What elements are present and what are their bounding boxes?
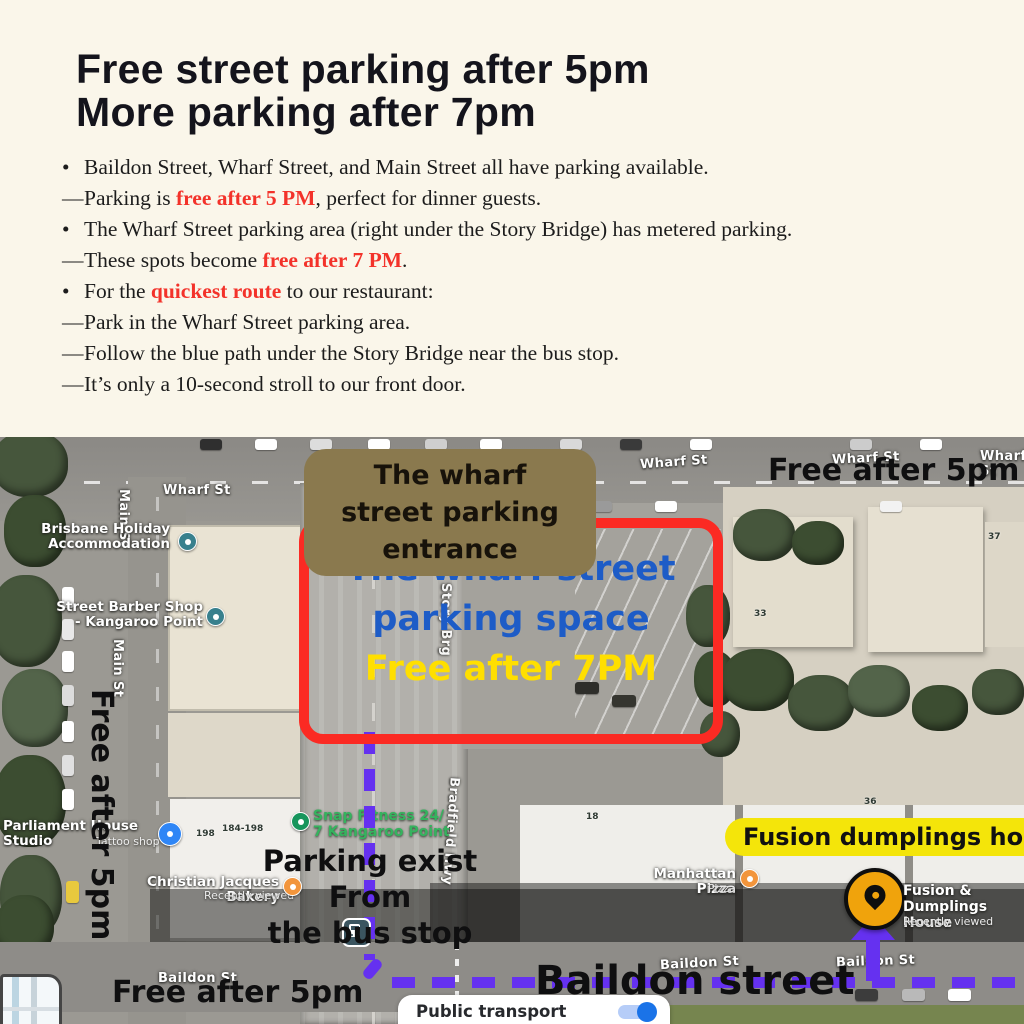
parking-exit-line-1: Parking exist From [220, 843, 520, 915]
car [620, 439, 642, 450]
car [850, 439, 872, 450]
bullet-marker: — [62, 245, 84, 276]
tree [2, 669, 68, 747]
bullet-marker: — [62, 338, 84, 369]
highlighted-text: free after 5 PM [176, 186, 315, 210]
annotation-free-after-5pm-left: Free after 5pm [84, 689, 119, 940]
fusion-badge: Fusion dumplings house [725, 818, 1024, 856]
bullet-marker: — [62, 307, 84, 338]
instruction-text: These spots become [84, 248, 263, 272]
instruction-line: —Parking is free after 5 PM, perfect for… [62, 183, 997, 214]
title-line-2: More parking after 7pm [76, 91, 650, 134]
gym-pin[interactable] [291, 812, 310, 831]
instruction-line: —Follow the blue path under the Story Br… [62, 338, 997, 369]
restaurant-marker[interactable] [844, 868, 906, 930]
bullet-marker: — [62, 183, 84, 214]
building-number: 198 [196, 829, 215, 839]
poi-fusion-sub: Recently viewed [903, 915, 993, 928]
title-line-1: Free street parking after 5pm [76, 48, 650, 91]
instruction-text: Follow the blue path under the Story Bri… [84, 341, 619, 365]
poi-manhattan-sub: Pizza [708, 882, 736, 895]
instruction-text: Baildon Street, Wharf Street, and Main S… [84, 155, 709, 179]
satellite-map[interactable]: Wharf St Wharf St Wharf St Wharf St Main… [0, 437, 1024, 1024]
car [855, 989, 878, 1001]
toggle-knob [637, 1002, 657, 1022]
instruction-text: It’s only a 10-second stroll to our fron… [84, 372, 466, 396]
building-number: 33 [754, 609, 767, 619]
tree [972, 669, 1024, 715]
public-transport-label: Public transport [416, 1002, 566, 1021]
instruction-text: Parking is [84, 186, 176, 210]
car [655, 501, 677, 512]
instruction-text: , perfect for dinner guests. [315, 186, 541, 210]
poi-snap-fitness: Snap Fitness 24/ 7 Kangaroo Point [313, 808, 450, 840]
instruction-text: . [402, 248, 407, 272]
minimap-inset[interactable] [0, 974, 62, 1024]
entrance-badge: The wharf street parking entrance [304, 449, 596, 576]
public-transport-toggle[interactable] [618, 1005, 654, 1019]
instruction-text: to our restaurant: [281, 279, 433, 303]
tree [0, 575, 62, 667]
parking-instructions-list: •Baildon Street, Wharf Street, and Main … [62, 152, 997, 400]
tree [0, 437, 68, 497]
poi-street-barber: Street Barber Shop - Kangaroo Point [55, 600, 203, 630]
instruction-line: •Baildon Street, Wharf Street, and Main … [62, 152, 997, 183]
tree [792, 521, 844, 565]
route-arrow-shaft [866, 935, 880, 981]
bullet-marker: — [62, 369, 84, 400]
instruction-text: The Wharf Street parking area (right und… [84, 217, 792, 241]
car [255, 439, 277, 450]
building-number: 36 [864, 797, 877, 807]
car [690, 439, 712, 450]
instruction-text: For the [84, 279, 151, 303]
annotation-free-after-5pm-bottom: Free after 5pm [112, 975, 363, 1010]
poi-brisbane-holiday: Brisbane Holiday Accommodation [22, 522, 170, 552]
barber-pin[interactable] [206, 607, 225, 626]
instruction-line: •For the quickest route to our restauran… [62, 276, 997, 307]
instruction-text: Park in the Wharf Street parking area. [84, 310, 410, 334]
annotation-free-after-5pm-top: Free after 5pm [768, 453, 1019, 488]
highlighted-text: free after 7 PM [263, 248, 402, 272]
car [920, 439, 942, 450]
car [62, 755, 74, 776]
bullet-marker: • [62, 152, 84, 183]
car [200, 439, 222, 450]
instruction-line: —Park in the Wharf Street parking area. [62, 307, 997, 338]
tree [788, 675, 854, 731]
bullet-marker: • [62, 276, 84, 307]
house-roof-2 [868, 507, 983, 652]
lodging-pin[interactable] [178, 532, 197, 551]
highlighted-text: quickest route [151, 279, 281, 303]
tree [912, 685, 968, 731]
tree [722, 649, 794, 711]
car [62, 721, 74, 742]
building-number: 37 [988, 532, 1001, 542]
parking-exit-line-2: the bus stop [220, 915, 520, 951]
building-number: 18 [586, 812, 599, 822]
tree [848, 665, 910, 717]
building-number: 184-198 [222, 824, 263, 834]
parking-space-line-2: parking space [309, 594, 713, 644]
car [902, 989, 925, 1001]
parking-space-free-label: Free after 7PM [309, 644, 713, 694]
car [62, 789, 74, 810]
shopping-pin[interactable] [158, 822, 182, 846]
car [880, 501, 902, 512]
pizza-pin[interactable] [740, 869, 759, 888]
public-transport-card: Public transport [398, 995, 670, 1024]
instruction-line: —These spots become free after 7 PM. [62, 245, 997, 276]
instruction-line: —It’s only a 10-second stroll to our fro… [62, 369, 997, 400]
tree [733, 509, 795, 561]
instruction-line: •The Wharf Street parking area (right un… [62, 214, 997, 245]
page-title: Free street parking after 5pm More parki… [76, 48, 650, 134]
street-label-wharf-st: Wharf St [163, 483, 231, 498]
car [62, 685, 74, 706]
annotation-parking-exit: Parking exist From the bus stop [220, 843, 520, 951]
flyer-section: Free street parking after 5pm More parki… [0, 0, 1024, 437]
car [66, 881, 79, 903]
bullet-marker: • [62, 214, 84, 245]
car [948, 989, 971, 1001]
car [62, 651, 74, 672]
building-west-mid [168, 713, 305, 797]
